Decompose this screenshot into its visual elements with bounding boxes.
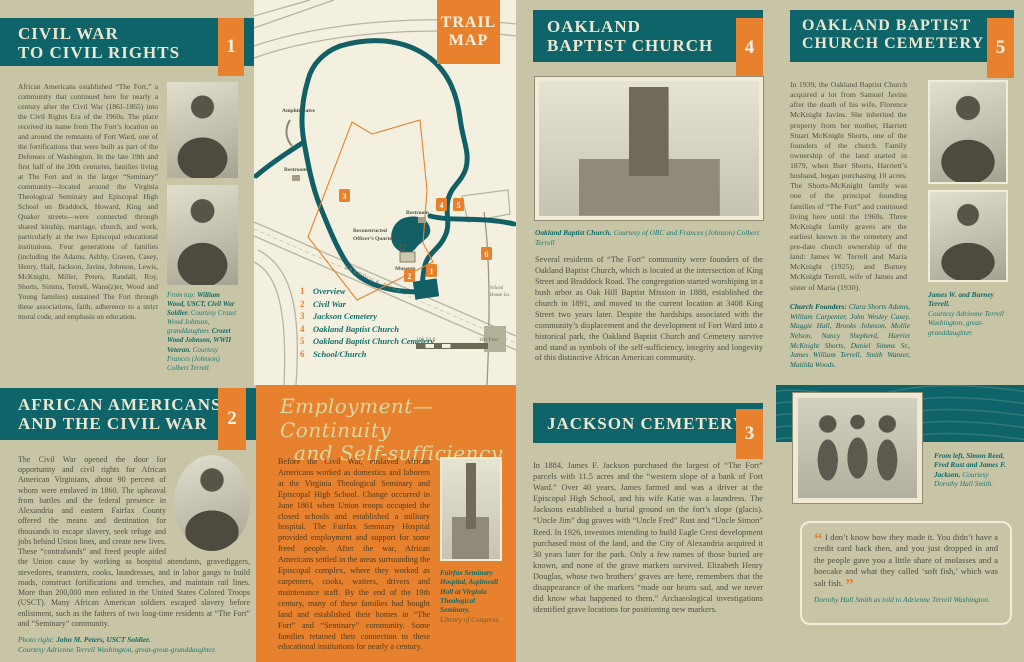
legend-item-civil-war: 2Civil War: [300, 299, 434, 309]
legend-item-overview: 1Overview: [300, 286, 434, 296]
section-number-badge: 3: [736, 409, 763, 459]
panel-jackson-cemetery: JACKSON CEMETERY 3 In 1884, James F. Jac…: [516, 385, 776, 662]
panel2-content: The Civil War opened the door for opport…: [18, 455, 250, 629]
restroom-icon-b: [418, 217, 426, 223]
map-marker-5: 5: [453, 198, 464, 211]
panel5-header: OAKLAND BAPTIST CHURCH CEMETERY 5: [790, 10, 1014, 62]
trail-map-title-line2: MAP: [449, 32, 488, 49]
employment-title: Employment—Continuity and Self-sufficien…: [280, 395, 516, 466]
quote-body: I don’t know how they made it. You didn’…: [814, 532, 998, 588]
panel2-photo-caption: Photo right: John M. Peters, USCT Soldie…: [18, 635, 250, 654]
founders-label: Church Founders:: [790, 302, 847, 311]
panel3-title: JACKSON CEMETERY: [547, 414, 746, 433]
panel3-body-text: In 1884, James F. Jackson purchased the …: [533, 460, 763, 615]
panel1-photo-caption: From top: William Wood, USCT, Civil War …: [167, 291, 238, 373]
caption-intro: Photo right:: [18, 635, 56, 644]
panel1-header: CIVIL WAR TO CIVIL RIGHTS 1: [0, 18, 254, 66]
legend-item-oakland-baptist-church: 4Oakland Baptist Church: [300, 324, 434, 334]
panel-civil-war-to-civil-rights: CIVIL WAR TO CIVIL RIGHTS 1 African Amer…: [0, 0, 254, 385]
panel4-header: OAKLAND BAPTIST CHURCH 4: [533, 10, 763, 62]
panel5-title-line2: CHURCH CEMETERY: [802, 35, 984, 52]
brochure-page: CIVIL WAR TO CIVIL RIGHTS 1 African Amer…: [0, 0, 1024, 662]
panel-photo-quote: From left, Simon Reed, Fred Rust and Jam…: [776, 385, 1024, 662]
scale-bar-graphic: [416, 343, 488, 349]
section-number-badge: 1: [218, 18, 244, 76]
employment-title-line1: Employment—Continuity: [280, 394, 433, 442]
photo-fairfax-seminary-hospital: [440, 457, 502, 561]
panel4-body-text: Several residents of “The Fort” communit…: [535, 255, 763, 364]
panel2-header: AFRICAN AMERICANS AND THE CIVIL WAR 2: [0, 388, 270, 440]
founders-names: Clara Shorts Adams, William Carpenter, J…: [790, 302, 910, 369]
caption-credit: Courtesy Adrienne Terrell Washington, gr…: [18, 645, 216, 654]
panel5-body-text: In 1939, the Oakland Baptist Church acqu…: [790, 80, 907, 293]
amphitheatre-label: Amphitheatre: [282, 108, 315, 114]
quote-text: “ I don’t know how they made it. You did…: [814, 532, 998, 589]
officers-quarters-label-2: Officer’s Quarters: [353, 236, 396, 242]
map-marker-2: 2: [404, 269, 415, 282]
church-founders-list: Church Founders: Clara Shorts Adams, Wil…: [790, 302, 910, 369]
photo-samuel-javins: [928, 80, 1008, 184]
panel-oakland-baptist-church: OAKLAND BAPTIST CHURCH 4 Oakland Baptist…: [516, 0, 776, 385]
map-marker-6: 6: [481, 247, 492, 260]
panel1-photo-column: From top: William Wood, USCT, Civil War …: [167, 82, 238, 373]
panel4-photo-caption: Oakland Baptist Church. Courtesy of OBC …: [535, 228, 763, 247]
photo-crozet-wood-johnson: [167, 185, 238, 285]
map-marker-1: 1: [426, 264, 437, 277]
page-title: CIVIL WAR TO CIVIL RIGHTS: [0, 18, 254, 63]
caption-credit: Library of Congress.: [440, 616, 500, 624]
section-number-badge: 2: [218, 388, 246, 450]
group-photo-caption: From left, Simon Reed, Fred Rust and Jam…: [934, 451, 1014, 489]
photo-william-wood: [167, 82, 238, 178]
section-number-badge: 4: [736, 18, 763, 78]
trail-map-legend: 1Overview 2Civil War 3Jackson Cemetery 4…: [300, 286, 434, 362]
amphitheatre-icon: [286, 120, 292, 146]
svg-text:4: 4: [440, 201, 444, 210]
section-number-badge: 5: [987, 18, 1014, 78]
officers-quarters-label-1: Reconstructed: [353, 228, 387, 234]
museum-icon: [400, 252, 415, 262]
svg-text:6: 6: [485, 250, 489, 259]
svg-text:2: 2: [408, 272, 412, 281]
panel4-title-line2: BAPTIST CHURCH: [547, 36, 713, 55]
restroom-label-a: Restroom: [284, 167, 307, 173]
caption-name: Fairfax Seminary Hospital, Aspinwall Hal…: [440, 569, 498, 614]
panel1-body-text: African Americans established “The Fort,…: [18, 82, 158, 373]
quote-box: “ I don’t know how they made it. You did…: [800, 521, 1012, 625]
caption-name: Oakland Baptist Church.: [535, 228, 612, 237]
panel4-title-line1: OAKLAND: [547, 17, 641, 36]
legend-item-jackson-cemetery: 3Jackson Cemetery: [300, 311, 434, 321]
panel-obc-cemetery: OAKLAND BAPTIST CHURCH CEMETERY 5 In 193…: [776, 0, 1024, 385]
svg-text:1: 1: [430, 267, 434, 276]
map-scale-bar: 100 50 0 100 Feet: [416, 337, 498, 349]
close-quote-mark: ”: [845, 575, 854, 594]
svg-text:5: 5: [457, 201, 461, 210]
quote-attribution: Dorothy Hall Smith as told to Adrienne T…: [814, 595, 998, 604]
panel1-title-line2: TO CIVIL RIGHTS: [18, 43, 180, 62]
employment-photo-caption: Fairfax Seminary Hospital, Aspinwall Hal…: [440, 569, 502, 625]
restroom-label-b: Restroom: [406, 210, 429, 216]
caption-credit: Courtesy Adrienne Terrell Washington, gr…: [928, 309, 1004, 337]
photo-oakland-baptist-church: [535, 77, 763, 220]
legend-item-school-church: 6School/Church: [300, 349, 434, 359]
caption-name: John M. Peters, USCT Soldier.: [56, 635, 150, 644]
photo-burney-terrell: [928, 190, 1008, 282]
panel2-title-line1: AFRICAN AMERICANS: [18, 395, 222, 414]
panel1-title-line1: CIVIL WAR: [18, 24, 119, 43]
photo-john-m-peters: [174, 455, 250, 551]
panel1-content: African Americans established “The Fort,…: [18, 82, 238, 373]
caption-name: James W. and Burney Terrell.: [928, 290, 994, 308]
photo-reed-rust-jackson: [793, 393, 922, 503]
legend-item-obc-cemetery: 5Oakland Baptist Church Cemetery: [300, 336, 434, 346]
map-marker-3: 3: [339, 189, 350, 202]
panel-employment: Employment—Continuity and Self-sufficien…: [256, 385, 516, 662]
panel5-title-line1: OAKLAND BAPTIST: [802, 17, 971, 34]
scale-left-label: 100 50 0: [416, 337, 435, 343]
svg-text:3: 3: [343, 192, 347, 201]
map-marker-4: 4: [436, 198, 447, 211]
panel5-photo-caption: James W. and Burney Terrell. Courtesy Ad…: [928, 290, 1008, 337]
trail-map-title-box: TRAIL MAP: [437, 0, 500, 64]
panel-african-americans-civil-war: AFRICAN AMERICANS AND THE CIVIL WAR 2 Th…: [0, 385, 254, 662]
scale-right-label: 100 Feet: [479, 337, 498, 343]
caption-intro: From top:: [167, 291, 197, 299]
panel2-title-line2: AND THE CIVIL WAR: [18, 414, 208, 433]
school-house-ln-label-2: House Ln.: [490, 293, 510, 298]
panel-trail-map: Amphitheatre Restroom Restroom Reconstru…: [254, 0, 516, 385]
employment-body-text: Before the Civil War, enslaved African A…: [278, 457, 430, 653]
panel3-header: JACKSON CEMETERY 3: [533, 403, 763, 443]
trail-map-title-line1: TRAIL: [441, 14, 497, 31]
restroom-icon-a: [292, 175, 300, 181]
school-house-ln-label-1: School: [490, 286, 504, 291]
